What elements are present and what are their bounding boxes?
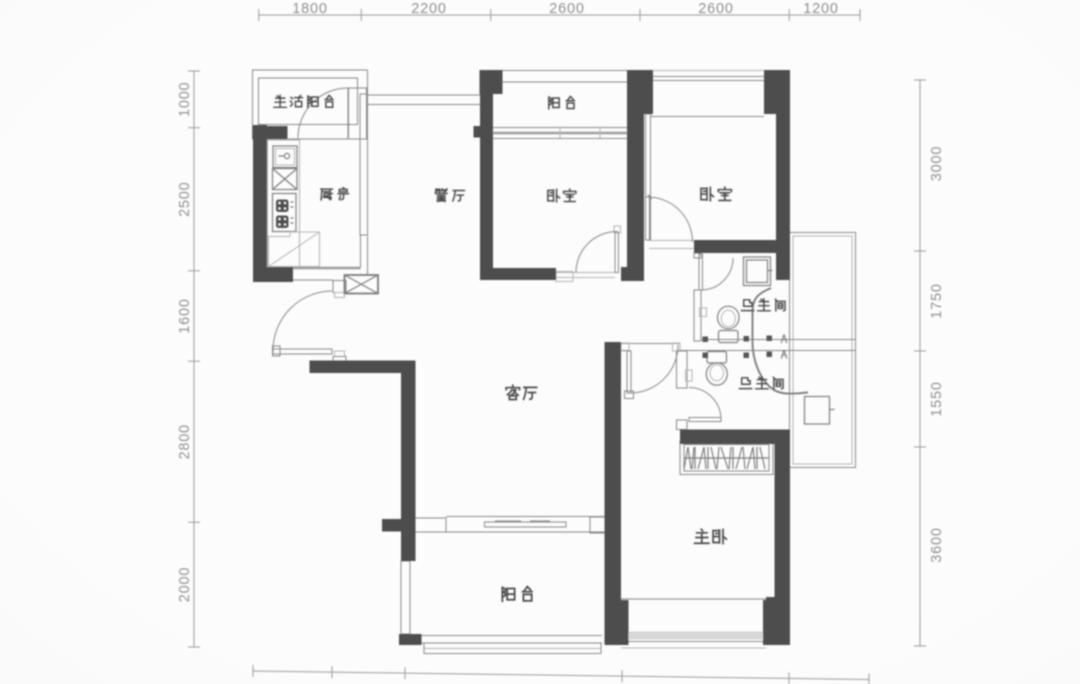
svg-text:1000: 1000 [177, 82, 193, 117]
svg-text:1200: 1200 [803, 1, 838, 17]
svg-text:2500: 2500 [177, 181, 193, 216]
svg-text:2600: 2600 [549, 1, 584, 17]
svg-text:2600: 2600 [698, 1, 733, 17]
svg-text:1800: 1800 [292, 1, 327, 17]
svg-text:2000: 2000 [177, 567, 193, 602]
svg-text:3000: 3000 [929, 146, 945, 181]
svg-text:2200: 2200 [411, 1, 446, 17]
svg-text:3600: 3600 [929, 527, 945, 562]
svg-text:1600: 1600 [177, 298, 193, 333]
svg-text:1550: 1550 [929, 381, 945, 416]
svg-text:2800: 2800 [177, 424, 193, 459]
svg-text:1750: 1750 [929, 283, 945, 318]
